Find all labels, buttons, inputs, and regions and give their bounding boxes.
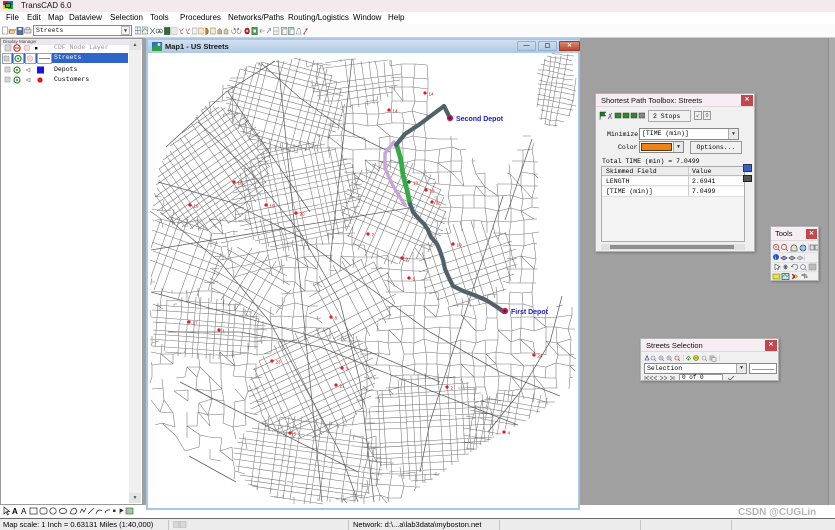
svg-text:12: 12 (430, 189, 436, 194)
svg-text:14: 14 (393, 109, 399, 114)
svg-text:20: 20 (300, 212, 306, 217)
svg-text:23: 23 (276, 360, 282, 365)
svg-text:11: 11 (436, 201, 441, 206)
svg-text:Second Depot: Second Depot (456, 116, 504, 123)
svg-text:13: 13 (413, 181, 419, 186)
svg-text:First Depot: First Depot (511, 309, 549, 316)
svg-text:21: 21 (340, 384, 346, 389)
svg-text:17: 17 (193, 321, 199, 326)
svg-text:9: 9 (406, 257, 409, 262)
svg-text:10: 10 (457, 243, 463, 248)
svg-text:14: 14 (429, 92, 435, 97)
svg-text:24: 24 (538, 354, 544, 359)
svg-text:A: A (12, 507, 18, 516)
svg-text:16: 16 (238, 181, 244, 186)
svg-text:2: 2 (451, 386, 454, 391)
svg-text:4: 4 (508, 431, 511, 436)
svg-text:8: 8 (335, 316, 338, 321)
svg-text:1: 1 (223, 329, 226, 334)
svg-text:i: i (775, 256, 776, 262)
svg-text:A: A (21, 507, 27, 516)
svg-text:19: 19 (194, 204, 200, 209)
svg-text:15: 15 (270, 204, 276, 209)
